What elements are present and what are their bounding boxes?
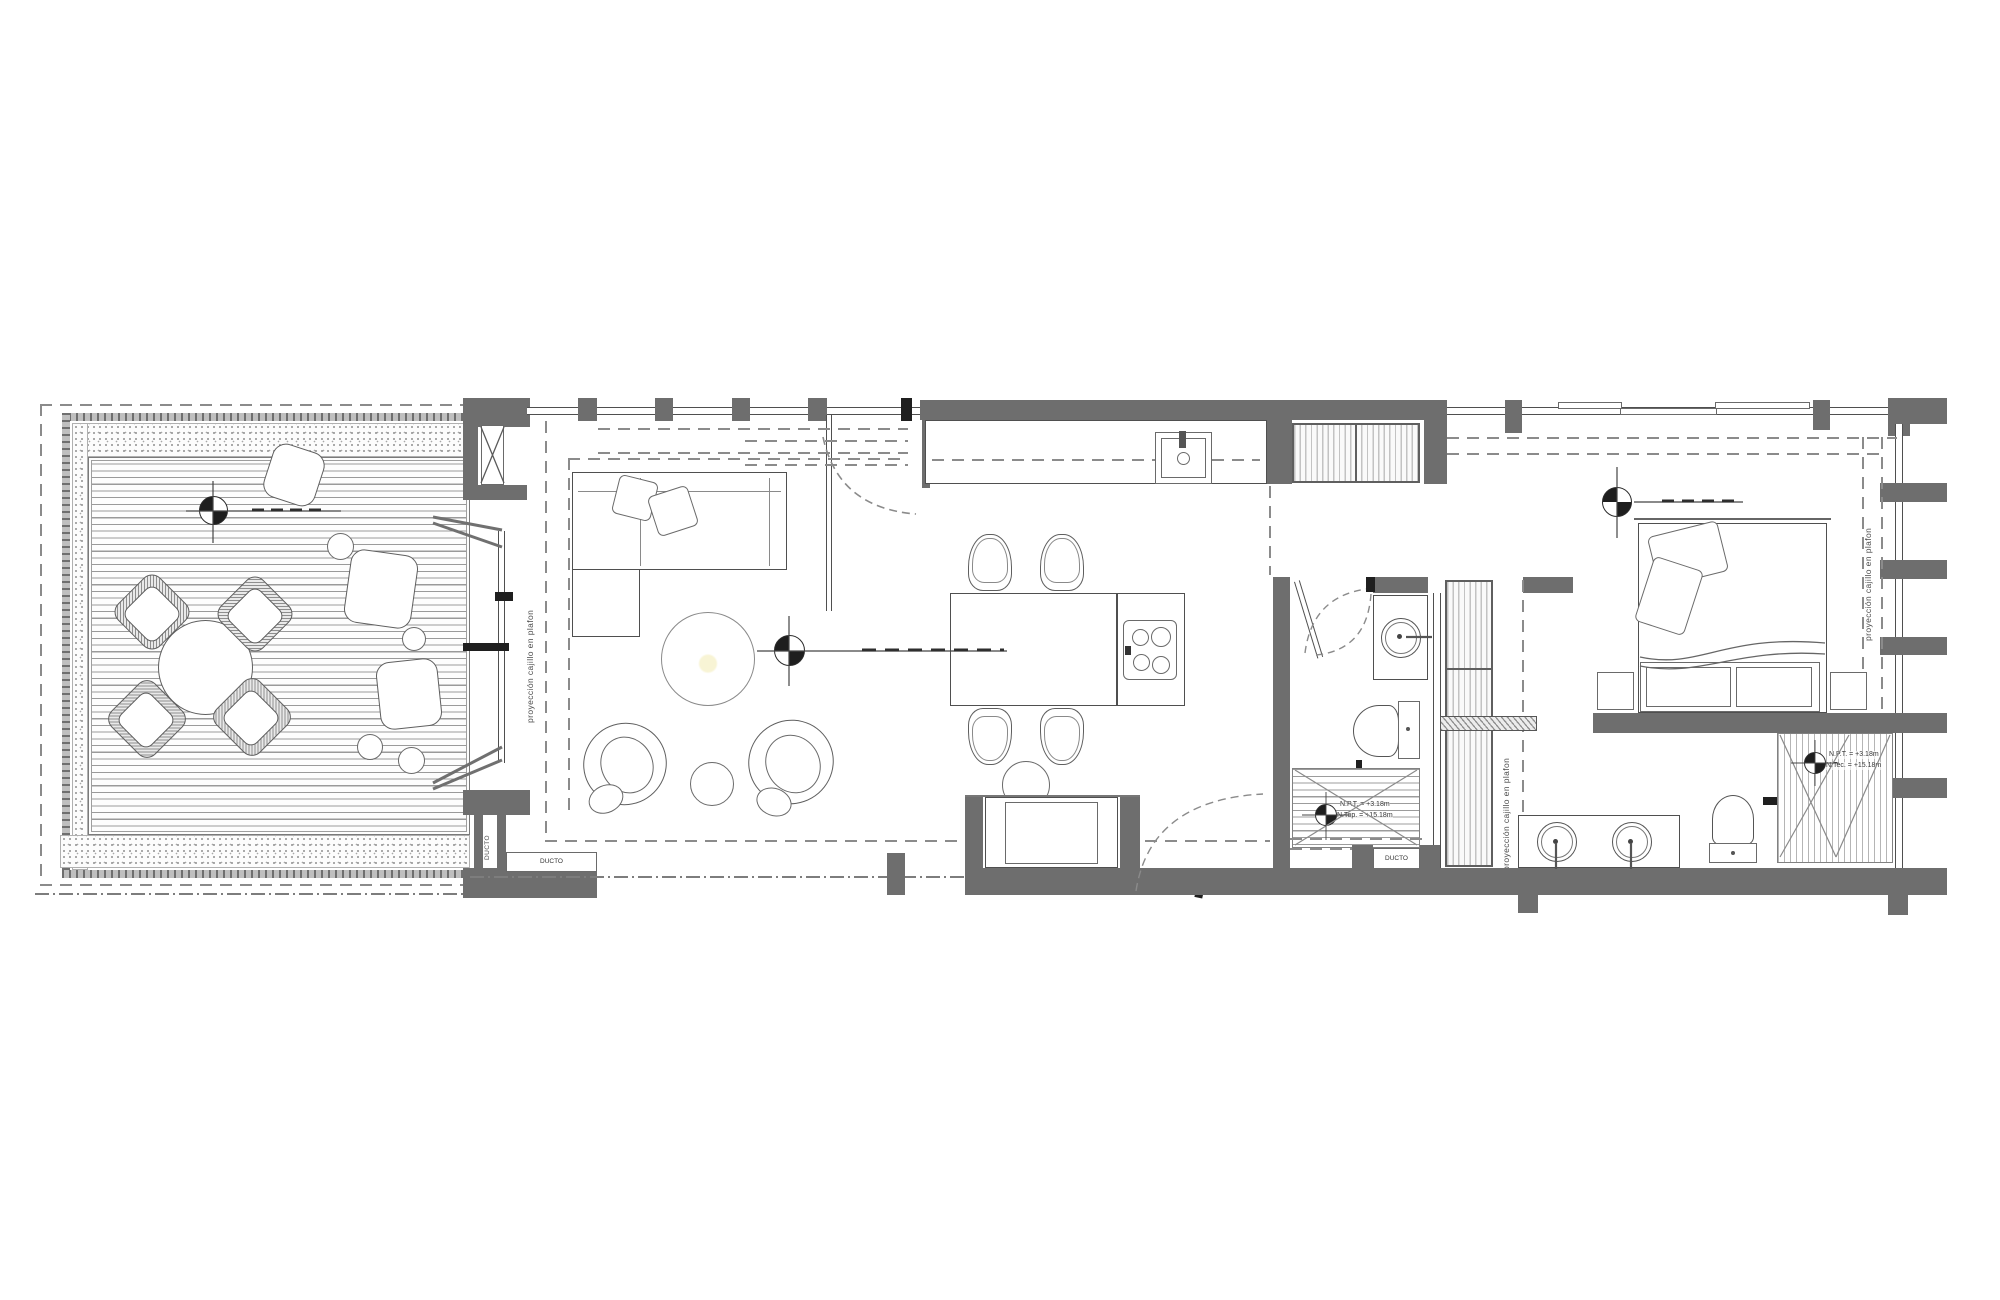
wc-shower-slope-lines — [1295, 770, 1417, 845]
vanity-faucet-stems — [1556, 843, 1631, 869]
marker-leader-terrace — [186, 481, 341, 543]
shower-slope-lines — [1780, 735, 1890, 857]
wc-door-swing — [1316, 594, 1371, 655]
folding-door-panels — [433, 517, 502, 789]
marker-leader-living — [757, 616, 1007, 686]
level-crosshair — [1791, 740, 1839, 786]
hall-door-swing — [1136, 794, 1263, 891]
bed-duvet-line — [1640, 642, 1825, 669]
entry-door-swing — [823, 437, 916, 514]
mullion-x-lines — [481, 427, 504, 483]
floor-plan: DUCTO DUCTO proyección cajillo en plafo — [0, 0, 2000, 1300]
wc-door-swing-alt — [1305, 589, 1366, 653]
plan-linework — [0, 0, 2000, 1300]
